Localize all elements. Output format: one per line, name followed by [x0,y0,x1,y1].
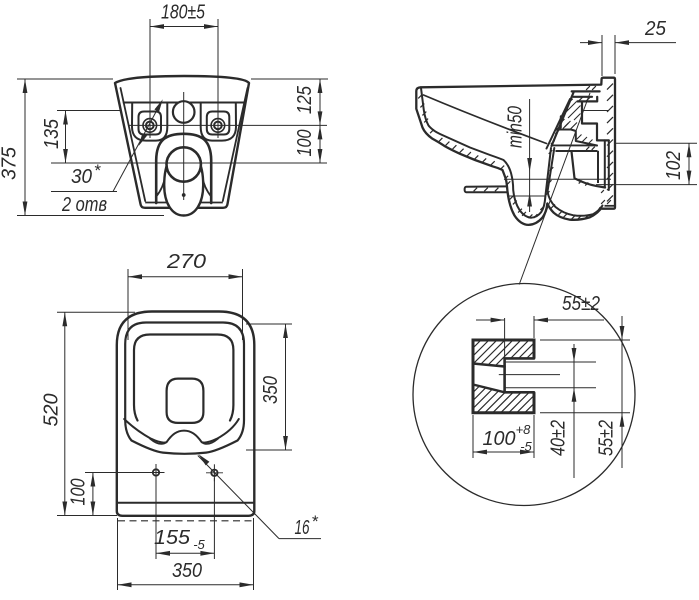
svg-text:100: 100 [483,428,516,450]
svg-text:155: 155 [154,527,191,549]
svg-text:25: 25 [644,18,667,40]
svg-text:+8: +8 [516,422,532,437]
svg-text:30: 30 [71,166,92,188]
svg-text:100: 100 [294,130,316,157]
svg-text:min50: min50 [505,106,527,148]
svg-text:102: 102 [663,151,685,180]
svg-text:2 отв: 2 отв [61,194,107,216]
svg-text:520: 520 [41,394,63,427]
svg-text:350: 350 [260,376,282,404]
svg-text:100: 100 [68,479,90,506]
svg-text:40±2: 40±2 [548,420,570,456]
svg-text:180±5: 180±5 [161,2,206,24]
svg-text:375: 375 [0,146,21,180]
svg-text:350: 350 [172,560,202,582]
svg-text:270: 270 [166,251,206,273]
svg-text:-5: -5 [193,537,205,552]
svg-text:*: * [94,161,102,180]
svg-text:55±2: 55±2 [562,293,600,315]
svg-text:16: 16 [295,517,311,539]
svg-text:55±2: 55±2 [596,420,618,456]
svg-text:135: 135 [41,118,63,149]
svg-text:*: * [311,512,319,531]
svg-text:125: 125 [294,85,316,114]
